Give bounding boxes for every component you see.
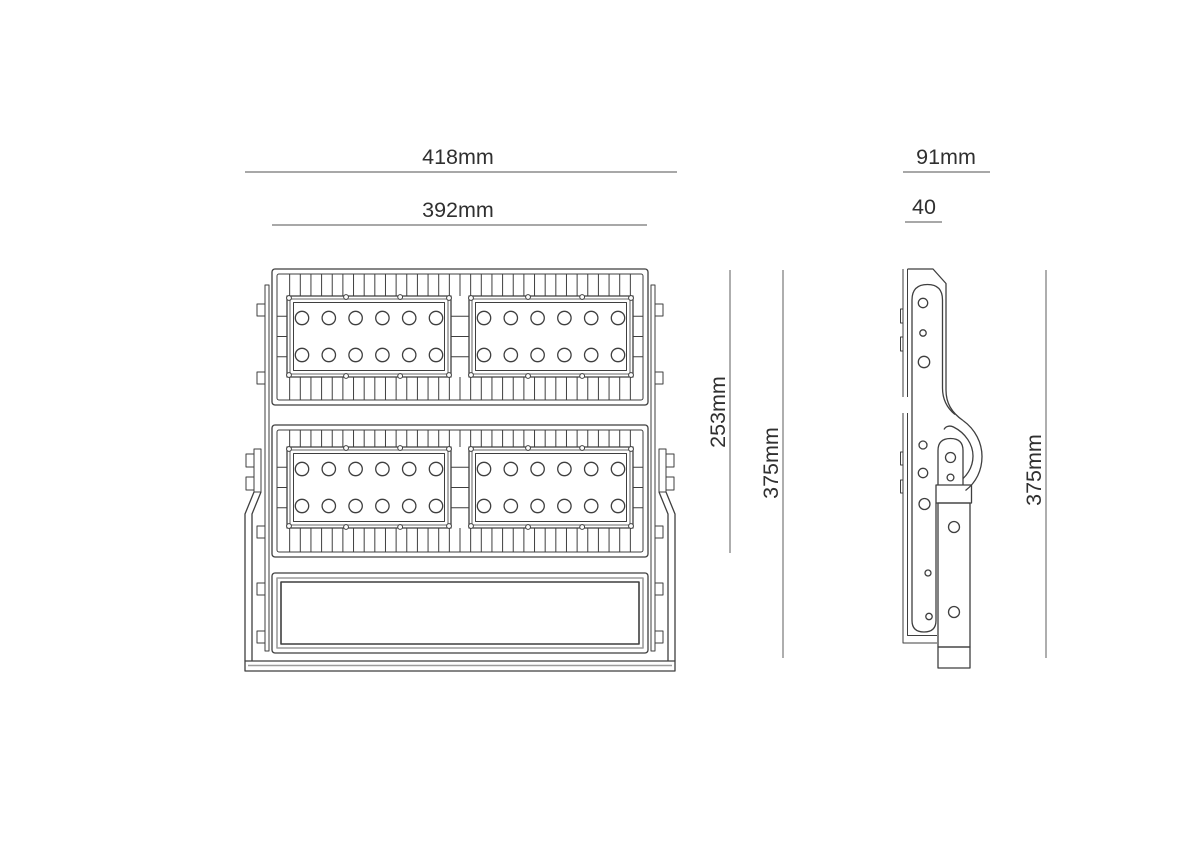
led-panel-2-2 [469,446,634,530]
hole [919,441,927,449]
side-tab-left [257,631,265,643]
side-tab-right [655,372,663,384]
front-view [245,269,675,671]
drawing-page: 418mm 392mm 91mm 40 253mm 375mm 375mm [0,0,1191,842]
screw [287,373,292,378]
screw [447,524,452,529]
hole [949,607,960,618]
driver-outline [272,573,648,653]
hole [946,453,956,463]
screw [580,446,585,451]
bracket-mount-plate-right [659,449,666,492]
screw [526,446,531,451]
screw [629,296,634,301]
bracket-foot [938,647,970,668]
screw [469,296,474,301]
screw [344,374,349,379]
bracket-crossbar [245,661,675,671]
screw [629,447,634,452]
panel-frame [469,296,633,377]
led-section-1 [272,269,648,405]
screw [526,374,531,379]
side-tab-left [257,304,265,316]
screw [344,525,349,530]
dim-label-front-body-width: 392mm [422,198,494,222]
screw [344,295,349,300]
panel-frame [287,447,451,528]
bracket-nub-left-1 [246,454,254,467]
hole [925,570,931,576]
bracket-arm-left [245,449,261,661]
screw [580,295,585,300]
hole [949,522,960,533]
screw [469,524,474,529]
side-strip-left [265,285,269,651]
floodlight-technical-drawing: 418mm 392mm 91mm 40 253mm 375mm 375mm [0,0,1191,842]
hole [926,613,932,619]
dim-label-side-overall-depth: 91mm [916,145,976,169]
side-strip-right [651,285,655,651]
screw [287,524,292,529]
dim-label-front-overall-width: 418mm [422,145,494,169]
hole [918,468,927,477]
side-tab-left [257,372,265,384]
dim-label-side-body-depth: 40 [912,195,936,219]
hole [919,499,930,510]
hole [918,298,927,307]
screw [447,296,452,301]
led-panel-1-2 [469,295,634,379]
screw [580,374,585,379]
screw [469,373,474,378]
screw [398,525,403,530]
side-tab-right [655,304,663,316]
panel-frame [287,296,451,377]
dim-label-front-led-height: 253mm [706,376,730,448]
bracket-nub-right-2 [666,477,674,490]
screw [526,525,531,530]
screw [287,447,292,452]
screw [469,447,474,452]
housing-profile [908,269,964,421]
dimension-annotations: 418mm 392mm 91mm 40 253mm 375mm 375mm [245,145,1046,658]
bracket-arm-right [659,449,675,661]
screw [629,524,634,529]
screw [287,296,292,301]
bracket-mount-plate-left [254,449,261,492]
driver-cover [281,582,639,644]
screw [398,374,403,379]
led-panel-2-1 [287,446,452,530]
side-tab-left [257,583,265,595]
screw [526,295,531,300]
screw [580,525,585,530]
screw [447,373,452,378]
screw [344,446,349,451]
driver-inner-gasket [277,578,643,648]
dim-label-front-overall-height: 375mm [759,427,783,499]
hole [920,330,926,336]
side-plate-upper [903,269,908,397]
screw [398,295,403,300]
led-panel-1-1 [287,295,452,379]
screw [629,373,634,378]
side-tab-right [655,631,663,643]
side-tab-left [257,526,265,538]
screw [447,447,452,452]
hole [918,356,929,367]
bracket-nub-right-1 [666,454,674,467]
driver-compartment [272,573,648,653]
bracket-nub-left-2 [246,477,254,490]
hole [947,474,954,481]
dim-label-side-overall-height: 375mm [1022,434,1046,506]
screw [398,446,403,451]
panel-frame [469,447,633,528]
side-tab-right [655,526,663,538]
front-view-generated [257,269,663,653]
led-section-2 [272,425,648,557]
side-tab-right [655,583,663,595]
bracket-clamp-band [936,485,972,503]
side-view [901,269,983,668]
